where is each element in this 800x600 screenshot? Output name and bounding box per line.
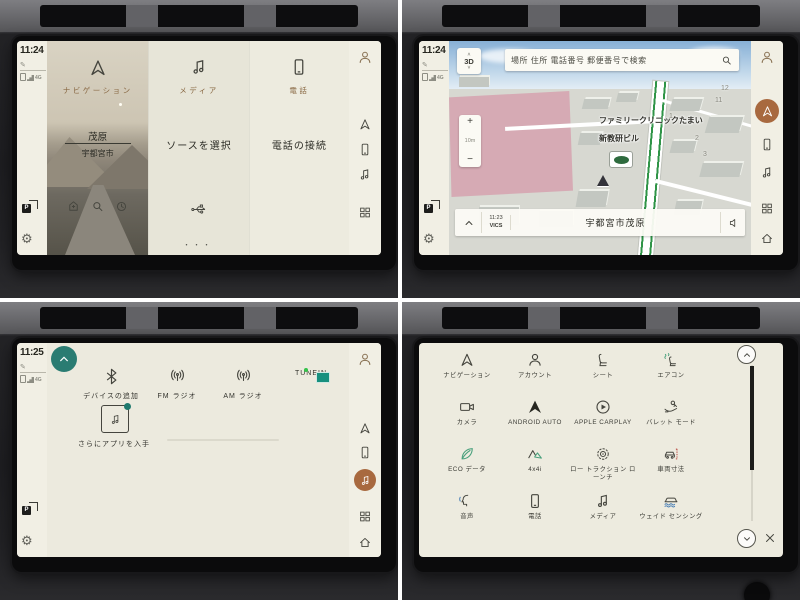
screen-projection-icon[interactable]: P bbox=[22, 200, 38, 213]
eco-data-icon bbox=[458, 445, 476, 463]
scroll-down-chevron[interactable] bbox=[737, 529, 756, 548]
left-status-bar: 11:25 ✎ 4G P ⚙ bbox=[17, 343, 47, 557]
get-more-apps-button[interactable] bbox=[101, 405, 129, 433]
music-note-icon[interactable] bbox=[760, 165, 775, 180]
tile-label: 電話 bbox=[250, 85, 349, 96]
photo-media-screen: 11:25 ✎ 4G P ⚙ デバイスの追加 FM ラジオ AM ラジオ bbox=[0, 302, 398, 600]
chevron-up-icon[interactable] bbox=[457, 212, 482, 233]
home-tile-media[interactable]: メディア ソースを選択 bbox=[148, 41, 248, 255]
left-status-bar: 11:24 ✎ 4G P ⚙ bbox=[419, 41, 449, 255]
map-search-bar[interactable]: 場所 住所 電話番号 郵便番号で検索 bbox=[505, 49, 739, 71]
zoom-out-button[interactable]: − bbox=[467, 155, 473, 165]
route-status-icon: ✎ bbox=[20, 363, 46, 373]
scroll-up-chevron[interactable] bbox=[737, 345, 756, 364]
apps-grid: ナビゲーション アカウント シート エアコン カメラ ANDROID AUTO … bbox=[433, 348, 705, 536]
valet-mode-icon bbox=[662, 398, 680, 416]
app-grid-icon[interactable] bbox=[760, 201, 775, 216]
status-icons: ✎ 4G bbox=[20, 363, 46, 383]
navigation-icon bbox=[458, 351, 476, 369]
right-shortcut-bar bbox=[751, 41, 783, 255]
app-navigation[interactable]: ナビゲーション bbox=[433, 348, 501, 395]
map-number: 11 bbox=[715, 97, 722, 104]
map-number: 1 bbox=[669, 113, 673, 120]
map-number: 12 bbox=[721, 85, 729, 92]
app-low-traction-launch[interactable]: ロー トラクション ローンチ bbox=[569, 442, 637, 489]
media-icon bbox=[594, 492, 612, 510]
left-status-bar: 11:24 ✎ 4G P ⚙ bbox=[17, 41, 47, 255]
four-photo-collage: 11:24 ✎ 4G P ⚙ ナビゲーション 茂原 宇都宮市 bbox=[0, 0, 800, 600]
brand-logo-map-pin bbox=[609, 151, 633, 168]
infotainment-screen-home: 11:24 ✎ 4G P ⚙ ナビゲーション 茂原 宇都宮市 bbox=[12, 36, 396, 270]
speaker-icon[interactable] bbox=[720, 212, 745, 233]
photo-navigation-screen: 11:24 ✎ 4G P ⚙ bbox=[402, 0, 800, 298]
app-climate[interactable]: エアコン bbox=[637, 348, 705, 395]
recents-clock-icon[interactable] bbox=[114, 199, 129, 214]
home-tile-phone[interactable]: 電話 電話の接続 bbox=[249, 41, 349, 255]
settings-gear-icon[interactable]: ⚙ bbox=[21, 534, 33, 547]
settings-gear-icon[interactable]: ⚙ bbox=[423, 232, 435, 245]
destination-name: 茂原 bbox=[47, 129, 148, 143]
seat-icon bbox=[594, 351, 612, 369]
poi-icon[interactable] bbox=[66, 199, 81, 214]
person-icon[interactable] bbox=[759, 49, 776, 66]
app-seat[interactable]: シート bbox=[569, 348, 637, 395]
map-poi-label: 新教研ビル bbox=[599, 133, 639, 144]
climate-icon bbox=[662, 351, 680, 369]
app-voice[interactable]: 音声 bbox=[433, 489, 501, 536]
music-note-icon bbox=[109, 413, 122, 426]
network-badge: 4G bbox=[35, 377, 42, 383]
phone-icon[interactable] bbox=[358, 142, 373, 157]
map-poi-label: ファミリークリニックたまい bbox=[599, 115, 703, 126]
zoom-in-button[interactable]: + bbox=[467, 117, 473, 127]
source-tunein[interactable]: TUNEIN bbox=[273, 365, 349, 377]
app-camera[interactable]: カメラ bbox=[433, 395, 501, 442]
network-badge: 4G bbox=[35, 75, 42, 81]
person-icon[interactable] bbox=[357, 351, 374, 368]
screen-projection-icon[interactable]: P bbox=[424, 200, 440, 213]
app-valet-mode[interactable]: バレット モード bbox=[637, 395, 705, 442]
source-bluetooth[interactable]: デバイスの追加 bbox=[73, 367, 149, 401]
phone-status-icon bbox=[20, 73, 26, 81]
usb-icon[interactable] bbox=[187, 199, 211, 217]
page-dots: ・・・ bbox=[47, 240, 349, 250]
source-fm-radio[interactable]: FM ラジオ bbox=[139, 367, 215, 401]
scrollbar-thumb[interactable] bbox=[750, 366, 754, 470]
clock: 11:25 bbox=[20, 347, 44, 358]
current-location-label: 宇都宮市茂原 bbox=[511, 216, 720, 229]
map-canvas[interactable]: ファミリークリニックたまい 新教研ビル 1 2 3 11 12 ˄3D˅ 場所 … bbox=[449, 41, 751, 255]
android-auto-icon bbox=[526, 398, 544, 416]
photo-settings-screen: ナビゲーション アカウント シート エアコン カメラ ANDROID AUTO … bbox=[402, 302, 800, 600]
account-icon bbox=[526, 351, 544, 369]
low-traction-launch-icon bbox=[594, 445, 612, 463]
app-grid-icon[interactable] bbox=[358, 509, 373, 524]
collapse-panel-chevron-up[interactable] bbox=[51, 346, 77, 372]
app-wade-sensing[interactable]: ウェイド センシング bbox=[637, 489, 705, 536]
app-android-auto[interactable]: ANDROID AUTO bbox=[501, 395, 569, 442]
app-account[interactable]: アカウント bbox=[501, 348, 569, 395]
network-badge: 4G bbox=[437, 75, 444, 81]
search-icon[interactable] bbox=[720, 54, 733, 67]
infotainment-screen-settings: ナビゲーション アカウント シート エアコン カメラ ANDROID AUTO … bbox=[414, 338, 798, 572]
phone-icon bbox=[289, 57, 309, 77]
infotainment-screen-media: 11:25 ✎ 4G P ⚙ デバイスの追加 FM ラジオ AM ラジオ bbox=[12, 338, 396, 572]
clock: 11:24 bbox=[422, 45, 446, 56]
bluetooth-icon bbox=[73, 367, 149, 386]
media-action: ソースを選択 bbox=[149, 137, 248, 152]
phone-icon[interactable] bbox=[760, 137, 775, 152]
panel-divider bbox=[167, 439, 279, 441]
signal-bars-icon bbox=[27, 75, 34, 81]
app-media[interactable]: メディア bbox=[569, 489, 637, 536]
compass-icon[interactable] bbox=[755, 99, 779, 123]
search-placeholder: 場所 住所 電話番号 郵便番号で検索 bbox=[511, 55, 720, 66]
close-icon[interactable] bbox=[763, 531, 777, 545]
map-scale: 10m bbox=[465, 138, 476, 144]
music-note-icon bbox=[189, 57, 209, 77]
navigation-arrow-icon[interactable] bbox=[358, 421, 373, 436]
tile-label: メディア bbox=[149, 85, 248, 96]
map-number: 3 bbox=[703, 151, 707, 158]
music-note-icon[interactable] bbox=[358, 167, 373, 182]
notification-dot bbox=[124, 403, 131, 410]
source-am-radio[interactable]: AM ラジオ bbox=[205, 367, 281, 401]
vehicle-dimensions-icon bbox=[662, 445, 680, 463]
fm-radio-icon bbox=[139, 367, 215, 386]
app-phone[interactable]: 電話 bbox=[501, 489, 569, 536]
photo-home-screen: 11:24 ✎ 4G P ⚙ ナビゲーション 茂原 宇都宮市 bbox=[0, 0, 398, 298]
right-shortcut-bar bbox=[349, 41, 381, 255]
dashboard-knob bbox=[744, 582, 770, 600]
map-zoom-control[interactable]: + 10m − bbox=[459, 115, 481, 167]
screen-projection-icon[interactable]: P bbox=[22, 502, 38, 515]
app-4x4i[interactable]: 4x4i bbox=[501, 442, 569, 489]
status-icons: ✎ 4G bbox=[20, 61, 46, 81]
dashboard-vents bbox=[402, 302, 800, 334]
signal-bars-icon bbox=[429, 75, 436, 81]
tile-label: ナビゲーション bbox=[47, 85, 148, 96]
dashboard-vents bbox=[0, 302, 398, 334]
dashboard-vents bbox=[0, 0, 398, 32]
navigation-arrow-icon[interactable] bbox=[358, 117, 373, 132]
app-grid-icon[interactable] bbox=[358, 205, 373, 220]
home-icon[interactable] bbox=[358, 535, 373, 550]
navigation-arrow-icon bbox=[87, 57, 109, 79]
phone-icon[interactable] bbox=[358, 445, 373, 460]
vics-badge[interactable]: 11:23VICS bbox=[482, 215, 511, 229]
route-status-icon: ✎ bbox=[20, 61, 46, 71]
camera-icon bbox=[458, 398, 476, 416]
destination-underline bbox=[65, 143, 131, 144]
map-bottom-bar: 11:23VICS 宇都宮市茂原 bbox=[455, 209, 745, 236]
clock: 11:24 bbox=[20, 45, 44, 56]
app-vehicle-dimensions[interactable]: 車両寸法 bbox=[637, 442, 705, 489]
infotainment-screen-map: 11:24 ✎ 4G P ⚙ bbox=[414, 36, 798, 270]
phone-status-icon bbox=[422, 73, 428, 81]
active-media-icon[interactable] bbox=[354, 469, 376, 491]
dashboard-vents bbox=[402, 0, 800, 32]
map-view-mode-button[interactable]: ˄3D˅ bbox=[457, 48, 481, 74]
map-road bbox=[655, 179, 751, 207]
search-icon[interactable] bbox=[90, 199, 105, 214]
status-icons: ✎ 4G bbox=[422, 61, 448, 81]
home-tile-navigation[interactable]: ナビゲーション 茂原 宇都宮市 bbox=[47, 41, 148, 255]
voice-icon bbox=[458, 492, 476, 510]
phone-icon bbox=[526, 492, 544, 510]
right-shortcut-bar bbox=[349, 343, 381, 557]
phone-action: 電話の接続 bbox=[250, 137, 349, 152]
get-more-apps-label: さらにアプリを入手 bbox=[54, 439, 174, 449]
signal-bars-icon bbox=[27, 377, 34, 383]
map-number: 2 bbox=[695, 135, 699, 142]
settings-gear-icon[interactable]: ⚙ bbox=[21, 232, 33, 245]
app-apple-carplay[interactable]: APPLE CARPLAY bbox=[569, 395, 637, 442]
4x4i-icon bbox=[526, 445, 544, 463]
am-radio-icon bbox=[205, 367, 281, 386]
wade-sensing-icon bbox=[662, 492, 680, 510]
vehicle-position-marker bbox=[597, 175, 609, 186]
home-icon[interactable] bbox=[760, 231, 775, 246]
person-icon[interactable] bbox=[357, 49, 374, 66]
phone-status-icon bbox=[20, 375, 26, 383]
apple-carplay-icon bbox=[594, 398, 612, 416]
route-status-icon: ✎ bbox=[422, 61, 448, 71]
app-eco-data[interactable]: ECO データ bbox=[433, 442, 501, 489]
destination-city: 宇都宮市 bbox=[47, 148, 148, 159]
